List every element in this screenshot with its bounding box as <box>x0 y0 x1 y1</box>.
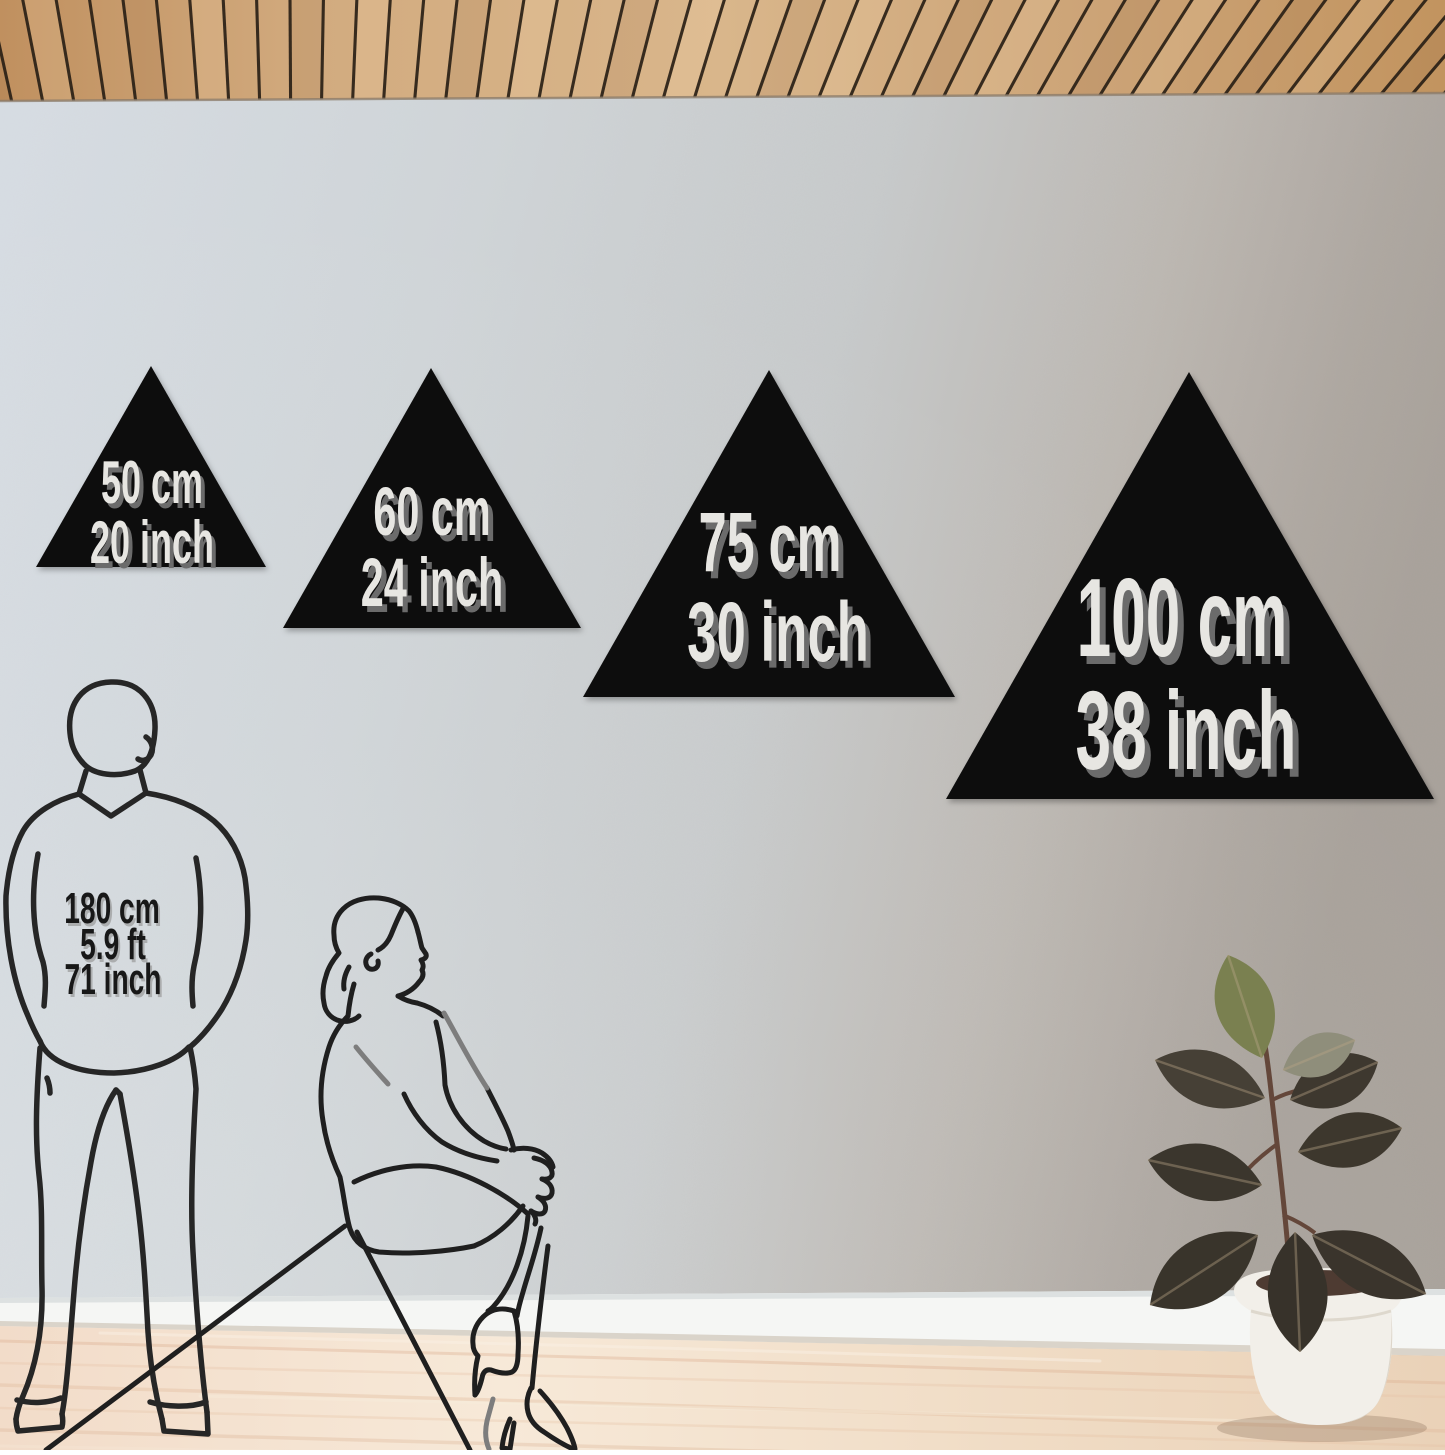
svg-text:71 inch: 71 inch <box>65 955 162 1004</box>
svg-text:24 inch: 24 inch <box>361 544 504 622</box>
svg-text:60 cm: 60 cm <box>373 473 490 551</box>
svg-text:50 cm: 50 cm <box>101 450 203 517</box>
svg-text:30 inch: 30 inch <box>687 586 869 679</box>
svg-text:38 inch: 38 inch <box>1075 670 1296 794</box>
svg-text:75 cm: 75 cm <box>699 495 842 590</box>
svg-text:100 cm: 100 cm <box>1077 557 1288 680</box>
svg-text:20 inch: 20 inch <box>90 510 214 577</box>
